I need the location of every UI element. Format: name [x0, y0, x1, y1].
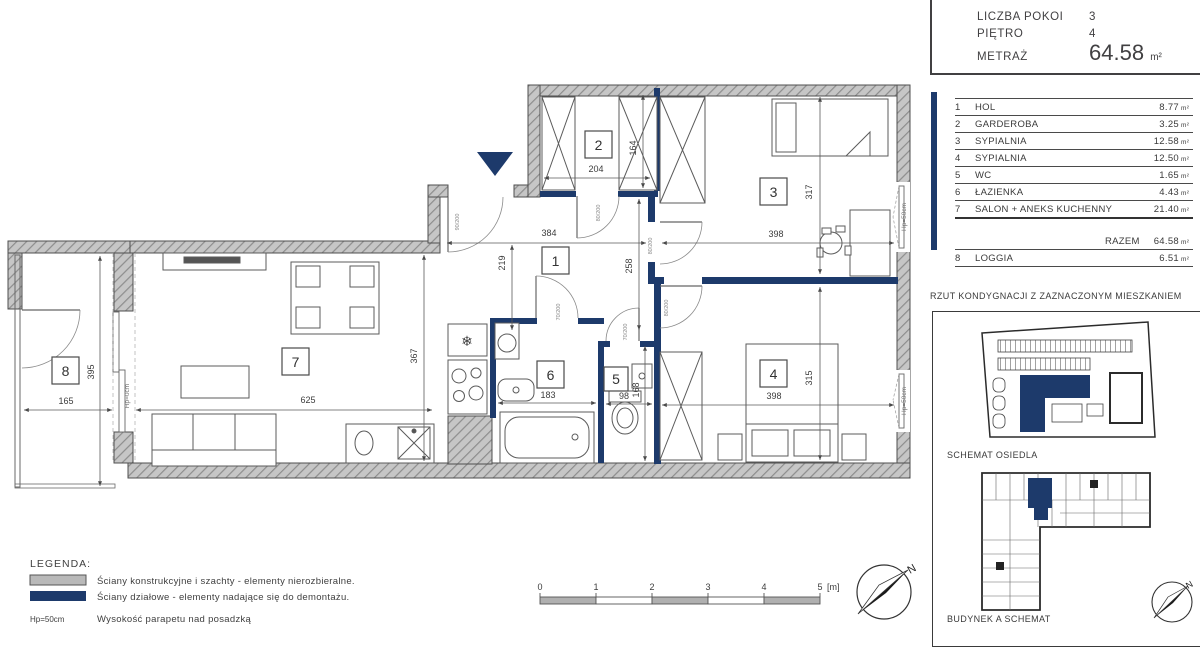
legend-title: LEGENDA:	[30, 558, 91, 570]
compass-small-icon: N	[1152, 579, 1195, 622]
svg-text:183: 183	[540, 390, 555, 400]
row-unit: m²	[1181, 122, 1193, 129]
row-number: 7	[955, 204, 975, 215]
floor-label: PIĘTRO	[977, 26, 1089, 43]
window-sill-label: Hp=50cm	[901, 387, 908, 415]
rooms-count-label: LICZBA POKOI	[977, 9, 1089, 26]
summary-row-area: METRAŻ 64.58 m²	[977, 44, 1200, 66]
highlighted-unit	[1034, 508, 1048, 520]
svg-text:384: 384	[541, 228, 556, 238]
wall-entrance-left	[428, 185, 448, 197]
nightstand	[718, 434, 742, 460]
area-unit: m²	[1150, 52, 1162, 63]
row-name: SALON + ANEKS KUCHENNY	[975, 204, 1154, 215]
legend-partition-label: Ściany działowe - elementy nadające się …	[97, 591, 349, 603]
row-unit: m²	[1181, 139, 1193, 146]
svg-text:164: 164	[628, 140, 638, 155]
row-unit: m²	[1181, 207, 1193, 214]
wall-living-top	[128, 241, 440, 253]
svg-text:98: 98	[619, 391, 629, 401]
svg-text:70/200: 70/200	[556, 304, 562, 321]
window-sill-label: Hp=50cm	[901, 203, 908, 231]
svg-text:367: 367	[409, 348, 419, 363]
snowflake-icon: ❄	[461, 333, 473, 349]
total-unit: m²	[1181, 239, 1193, 246]
legend-note-key: Hp=50cm	[30, 615, 65, 624]
row-number: 6	[955, 187, 975, 198]
room-number-hol: 1	[552, 253, 560, 269]
row-number: 8	[955, 253, 975, 264]
room-number-wc: 5	[612, 371, 620, 387]
wall-loggia-stub-top	[114, 253, 133, 311]
row-unit: m²	[1181, 173, 1193, 180]
legend: LEGENDA: Ściany konstrukcyjne i szachty …	[30, 558, 355, 625]
chair	[296, 307, 320, 328]
row-name: SYPIALNIA	[975, 136, 1154, 147]
row-name: ŁAZIENKA	[975, 187, 1159, 198]
balcony-strip	[998, 340, 1132, 352]
coffee-table	[181, 366, 249, 398]
wall-block-left	[528, 85, 540, 197]
room-number-garderoba: 2	[595, 137, 603, 153]
loggia-row: 8 LOGGIA 6.51 m²	[955, 250, 1193, 267]
svg-text:4: 4	[761, 582, 766, 592]
row-area: 3.25	[1159, 119, 1179, 130]
legend-swatch-partition	[30, 591, 86, 601]
loggia-door-pane	[113, 312, 119, 372]
svg-text:80/200: 80/200	[664, 300, 670, 317]
washbasin	[498, 379, 534, 401]
floorplan-page: { "header": { "rows": [ {"label": "LICZB…	[0, 0, 1200, 631]
building-schematic	[982, 473, 1150, 610]
row-number: 2	[955, 119, 975, 130]
room-number-loggia: 8	[62, 363, 70, 379]
legend-swatch-structural	[30, 575, 86, 585]
balcony-strip	[998, 358, 1090, 370]
svg-text:317: 317	[804, 184, 814, 199]
svg-text:398: 398	[768, 229, 783, 239]
svg-text:90/200: 90/200	[455, 214, 461, 231]
legend-note-text: Wysokość parapetu nad posadzką	[97, 614, 252, 625]
svg-text:204: 204	[588, 164, 603, 174]
row-area: 6.51	[1159, 253, 1179, 264]
svg-text:315: 315	[804, 370, 814, 385]
toilet	[612, 402, 638, 434]
wall-loggia-stub-bottom	[114, 432, 133, 463]
total-label: RAZEM	[1105, 236, 1140, 247]
wall-kitchen-column	[448, 416, 492, 464]
table-row: 7 SALON + ANEKS KUCHENNY 21.40 m²	[955, 201, 1193, 219]
row-name: SYPIALNIA	[975, 153, 1154, 164]
stair-core	[996, 562, 1004, 570]
table-row: 4 SYPIALNIA 12.50 m²	[955, 150, 1193, 167]
living-room-furniture	[152, 253, 379, 466]
legend-structural-label: Ściany konstrukcyjne i szachty - element…	[97, 575, 355, 587]
highlighted-unit	[1028, 478, 1052, 508]
row-area: 12.50	[1154, 153, 1179, 164]
row-name: LOGGIA	[975, 253, 1159, 264]
nightstand	[842, 434, 866, 460]
room-number-sypialnia1: 3	[770, 184, 778, 200]
row-area: 21.40	[1154, 204, 1179, 215]
row-area: 4.43	[1159, 187, 1179, 198]
table-row: 5 WC 1.65 m²	[955, 167, 1193, 184]
row-name: HOL	[975, 102, 1159, 113]
svg-text:219: 219	[497, 255, 507, 270]
svg-text:80/200: 80/200	[596, 205, 602, 222]
table-row: 1 HOL 8.77 m²	[955, 99, 1193, 116]
svg-text:3: 3	[705, 582, 710, 592]
compass-north-label: N	[1184, 579, 1195, 591]
neighbor-unit	[1110, 373, 1142, 423]
row-number: 3	[955, 136, 975, 147]
compass-north-label: N	[906, 562, 919, 576]
location-graphics: N	[930, 300, 1200, 631]
svg-text:625: 625	[300, 395, 315, 405]
room-number-salon: 7	[292, 354, 300, 370]
row-area: 12.58	[1154, 136, 1179, 147]
svg-text:258: 258	[624, 258, 634, 273]
summary-row: LICZBA POKOI 3	[977, 9, 1200, 26]
area-label: METRAŻ	[977, 49, 1089, 66]
room-number-sypialnia2: 4	[770, 366, 778, 382]
row-unit: m²	[1181, 256, 1193, 263]
total-area: 64.58	[1154, 236, 1179, 247]
svg-text:168: 168	[631, 382, 641, 397]
accent-bar	[931, 92, 937, 250]
svg-text:165: 165	[58, 396, 73, 406]
chair	[296, 266, 320, 287]
sofa	[152, 414, 276, 466]
unit-summary-box: LICZBA POKOI 3 PIĘTRO 4 METRAŻ 64.58 m²	[930, 0, 1200, 75]
tv	[184, 257, 240, 263]
svg-text:395: 395	[86, 364, 96, 379]
floor-plan-drawing: Hp=50cm Hp=50cm Hp=0cm	[0, 0, 930, 631]
compass-icon: N	[857, 562, 918, 619]
row-area: 1.65	[1159, 170, 1179, 181]
room-number-lazienka: 6	[547, 367, 555, 383]
svg-text:80/200: 80/200	[648, 238, 654, 255]
row-unit: m²	[1181, 190, 1193, 197]
table-row: 3 SYPIALNIA 12.58 m²	[955, 133, 1193, 150]
svg-text:70/200: 70/200	[623, 324, 629, 341]
row-area: 8.77	[1159, 102, 1179, 113]
row-name: GARDEROBA	[975, 119, 1159, 130]
svg-text:2: 2	[649, 582, 654, 592]
svg-text:398: 398	[766, 391, 781, 401]
svg-text:0: 0	[537, 582, 542, 592]
table-row: 6 ŁAZIENKA 4.43 m²	[955, 184, 1193, 201]
svg-text:[m]: [m]	[827, 582, 840, 592]
entrance-arrow-icon	[477, 152, 513, 176]
wall-loggia-top	[8, 241, 130, 253]
chair	[350, 266, 374, 287]
stair-core	[1090, 480, 1098, 488]
svg-text:5: 5	[817, 582, 822, 592]
row-name: WC	[975, 170, 1159, 181]
row-unit: m²	[1181, 156, 1193, 163]
rooms-count-value: 3	[1089, 9, 1096, 26]
wall-top-right	[528, 85, 908, 96]
room-area-table: 1 HOL 8.77 m² 2 GARDEROBA 3.25 m² 3 SYPI…	[955, 98, 1193, 267]
row-number: 4	[955, 153, 975, 164]
site-plan	[982, 322, 1155, 437]
scale-bar	[540, 593, 820, 604]
row-number: 5	[955, 170, 975, 181]
svg-text:1: 1	[593, 582, 598, 592]
row-unit: m²	[1181, 105, 1193, 112]
wall-entrance-connector	[428, 197, 440, 243]
chair	[350, 307, 374, 328]
loggia-sill-label: Hp=0cm	[124, 384, 131, 408]
scale-bar-labels: 0 1 2 3 4 5 [m]	[537, 582, 839, 592]
area-value: 64.58 m²	[1089, 44, 1162, 66]
row-number: 1	[955, 102, 975, 113]
table-row: 2 GARDEROBA 3.25 m²	[955, 116, 1193, 133]
bathtub	[500, 412, 594, 463]
stove	[448, 360, 487, 414]
total-row: RAZEM 64.58 m²	[955, 233, 1193, 250]
